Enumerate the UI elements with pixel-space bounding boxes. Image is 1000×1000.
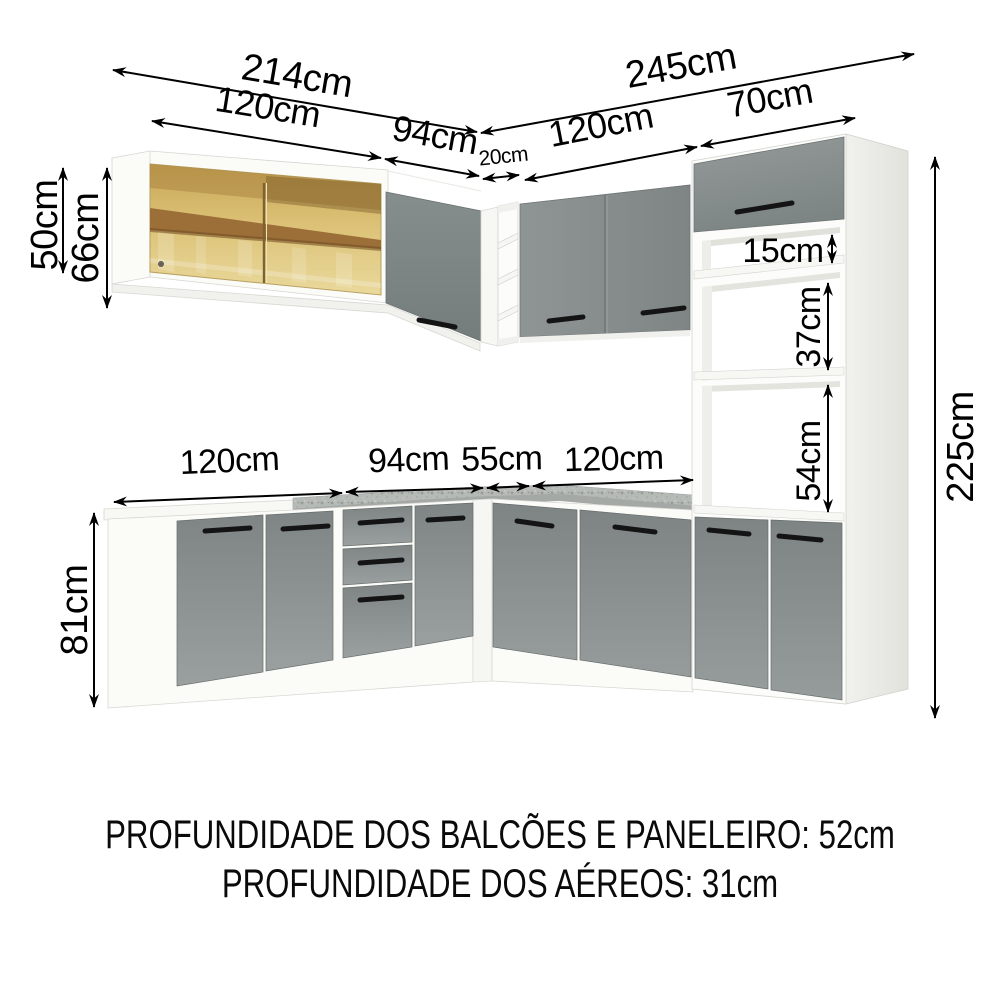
tower-side-panel: [846, 134, 908, 704]
dim-top-70: 70cm: [724, 70, 816, 126]
base-door-handle: [205, 528, 250, 531]
dim-total-right: 245cm: [622, 35, 739, 96]
drawer-front: [343, 583, 412, 658]
glass-door-knob: [158, 261, 164, 267]
open-shelf-unit: [498, 202, 518, 346]
drawer-handle: [360, 560, 402, 563]
base-door: [771, 520, 842, 700]
footer-depth-aereos: PROFUNDIDADE DOS AÉREOS: 31cm: [222, 861, 778, 906]
dim-66: 66cm: [65, 193, 107, 284]
base-door: [266, 511, 333, 671]
base-door: [177, 515, 263, 686]
dim-top-20: 20cm: [478, 143, 529, 171]
drawer-front: [343, 506, 412, 546]
dim-mid-120-right: 120cm: [563, 439, 664, 480]
base-door-handle: [428, 518, 463, 520]
dim-mid-120-left: 120cm: [179, 440, 280, 482]
drawer-handle: [360, 597, 402, 600]
drawer-front: [343, 545, 412, 585]
dim-225: 225cm: [940, 391, 982, 503]
dim-mid-55: 55cm: [461, 439, 543, 478]
right-base-cabinets: [493, 503, 691, 677]
right-wall-cabinet: [520, 185, 690, 343]
corner-base-face: [473, 499, 492, 682]
footer-depth-balcoes: PROFUNDIDADE DOS BALCÕES E PANELEIRO: 52…: [105, 812, 895, 857]
dim-54: 54cm: [790, 420, 828, 501]
kitchen-dimension-diagram: 214cm 245cm 120cm 94cm 20cm 120cm 70cm 5…: [0, 0, 1000, 1000]
dim-mid-94: 94cm: [367, 440, 449, 481]
base-door: [695, 517, 768, 689]
dim-top-94: 94cm: [389, 107, 481, 162]
dim-81: 81cm: [54, 565, 96, 656]
dim-top-120-right: 120cm: [545, 95, 656, 155]
dim-50: 50cm: [24, 180, 66, 271]
tower-flap-door: [694, 137, 844, 232]
corner-post: [481, 207, 498, 346]
dim-37: 37cm: [790, 286, 828, 367]
base-door-handle: [283, 526, 328, 529]
product-dimension-image: 214cm 245cm 120cm 94cm 20cm 120cm 70cm 5…: [0, 0, 1000, 1000]
footer-notes: PROFUNDIDADE DOS BALCÕES E PANELEIRO: 52…: [105, 812, 895, 906]
corner-wall-door: [386, 192, 481, 341]
base-door: [580, 510, 691, 677]
base-door: [415, 503, 473, 646]
corner-wall-cabinet: [386, 192, 481, 341]
pantry-tower: [692, 134, 908, 704]
base-door: [493, 503, 577, 660]
drawer-handle: [360, 520, 402, 523]
dim-15: 15cm: [742, 232, 823, 270]
